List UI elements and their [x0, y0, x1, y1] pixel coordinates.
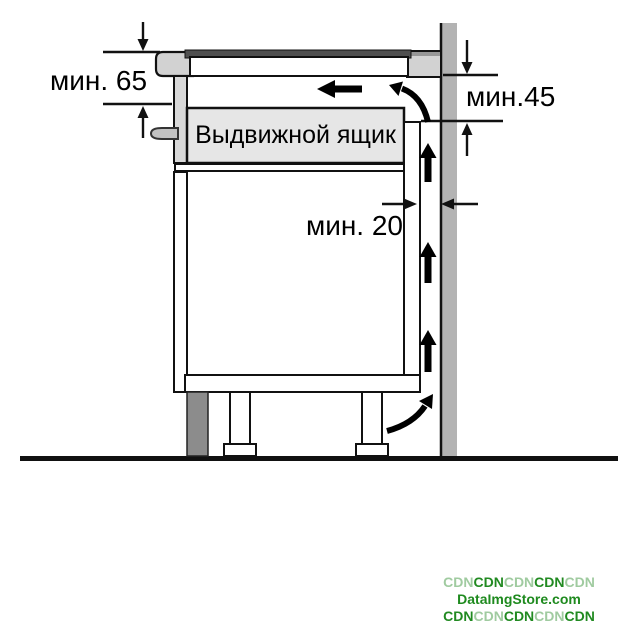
- cabinet-bottom-shelf: [185, 375, 420, 392]
- watermark-cdn: CDN: [473, 608, 503, 624]
- airflow-up-arrow2-head: [420, 242, 437, 257]
- dimension-label-min-65: мин. 65: [50, 66, 147, 96]
- diagram-canvas: мин. 65 мин.45 мин. 20 Выдвижной ящик CD…: [0, 0, 638, 640]
- watermark-cdn: CDN: [504, 608, 534, 624]
- airflow-curve-top-head: [389, 82, 403, 97]
- dimension-label-min-45: мин.45: [466, 82, 555, 112]
- airflow-up-arrow3-head: [420, 330, 437, 345]
- dim65-arrow-down-head: [138, 39, 149, 51]
- watermark-domain: DataImgStore.com: [438, 591, 600, 608]
- drawer-front-panel: [174, 76, 187, 163]
- worktop-right-top-edge: [408, 52, 440, 56]
- plinth-panel: [187, 392, 208, 456]
- cabinet-back-panel: [404, 122, 420, 378]
- dim65-arrow-up-head: [138, 106, 149, 118]
- drawer-handle: [151, 128, 178, 139]
- leg-left-shaft: [230, 392, 250, 444]
- wall: [442, 23, 457, 457]
- watermark-cdn: CDN: [443, 608, 473, 624]
- watermark-cdn: CDN: [565, 608, 595, 624]
- cabinet-front-panel: [174, 172, 187, 392]
- watermark-line1: CDNCDNCDNCDNCDN: [438, 574, 600, 591]
- leg-right-foot: [356, 444, 388, 456]
- airflow-curve-top: [402, 89, 428, 123]
- watermark-cdn: CDN: [534, 608, 564, 624]
- airflow-up-arrow1-head: [420, 143, 437, 158]
- dimension-label-min-20: мин. 20: [295, 211, 403, 241]
- airflow-curve-bottom: [387, 406, 425, 431]
- drawer-label: Выдвижной ящик: [187, 108, 404, 163]
- airflow-left-arrow-head: [317, 80, 335, 98]
- watermark-cdn: CDN: [504, 574, 534, 590]
- watermark-cdn: CDN: [565, 574, 595, 590]
- dim45-arrow-down-head: [462, 62, 473, 74]
- leg-right-shaft: [362, 392, 382, 444]
- hob-body: [190, 57, 408, 76]
- watermark-cdn: CDN: [534, 574, 564, 590]
- floor-line: [20, 456, 618, 461]
- watermark-cdn: CDN: [473, 574, 503, 590]
- watermark-line3: CDNCDNCDNCDNCDN: [438, 608, 600, 625]
- watermark: CDNCDNCDNCDNCDN DataImgStore.com CDNCDNC…: [438, 574, 600, 625]
- dim45-arrow-up-head: [462, 123, 473, 135]
- drawer-compartment-bottom: [175, 164, 420, 171]
- leg-left-foot: [224, 444, 256, 456]
- watermark-cdn: CDN: [443, 574, 473, 590]
